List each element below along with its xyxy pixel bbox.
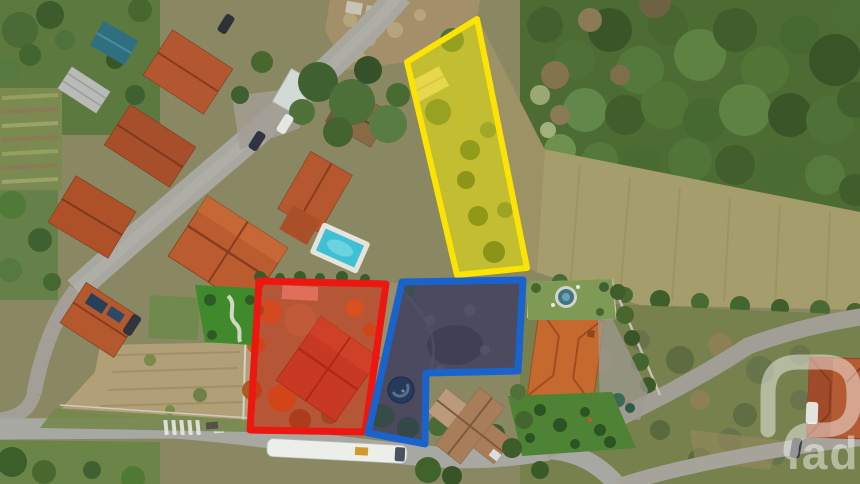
garden-rows-left (0, 88, 62, 190)
plot-highlight-red (250, 281, 386, 432)
orange-hip-roof-house (527, 309, 605, 405)
car (806, 402, 819, 424)
garden-center (148, 295, 200, 340)
lawn-with-stairs (195, 285, 255, 345)
garden-with-round-pool (526, 279, 616, 320)
vegetation-left-middle (0, 190, 61, 300)
iad-watermark-text: iad (787, 427, 859, 479)
aerial-photo: iad (0, 0, 860, 484)
bus-shelter (206, 421, 219, 429)
